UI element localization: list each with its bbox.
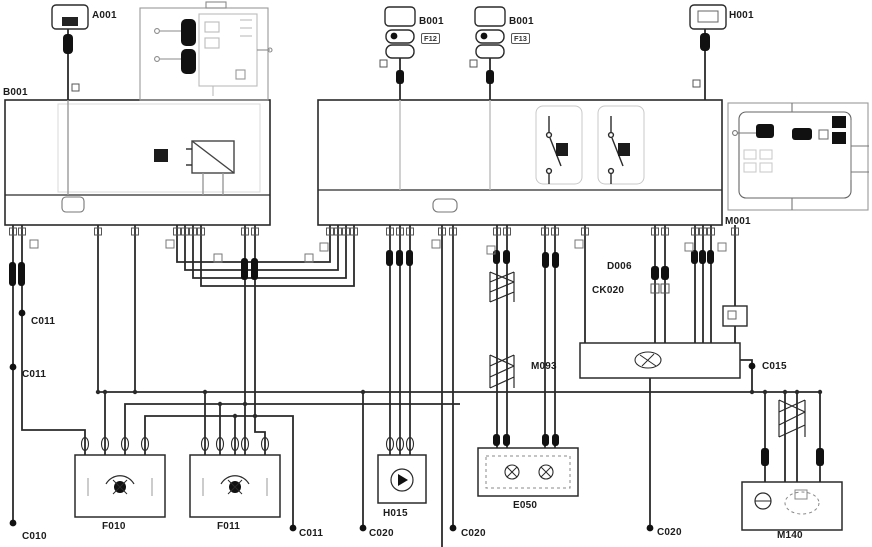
relay-detail-inset	[728, 103, 869, 210]
label-a001: A001	[92, 10, 117, 21]
wires	[13, 29, 820, 547]
label-fuse2-sub: F13	[511, 33, 530, 44]
pin-square	[10, 60, 739, 293]
bulb-detail-inset	[140, 2, 272, 100]
label-c011-lower: C011	[22, 369, 46, 380]
label-ck020: CK020	[592, 285, 624, 296]
r1-small-connector-box	[723, 306, 747, 326]
label-fuse1: B001	[419, 16, 444, 27]
label-h015: H015	[383, 508, 408, 519]
label-c015: C015	[762, 361, 787, 372]
label-c011-upper: C011	[31, 316, 55, 327]
label-m140: M140	[777, 530, 803, 541]
label-c020-mid: C020	[461, 528, 486, 539]
label-e050: E050	[513, 500, 537, 511]
m140-component-box	[742, 482, 842, 530]
h015-lamp-box	[378, 455, 426, 503]
fuse1-symbol	[385, 7, 415, 58]
label-f010: F010	[102, 521, 126, 532]
m093-component-box	[580, 343, 740, 378]
wiring-diagram-canvas: A001 B001 B001 F12 B001 F13 H001 M001 D0…	[0, 0, 872, 547]
label-d006: D006	[607, 261, 632, 272]
label-c020-right: C020	[657, 527, 682, 538]
splice-icon	[9, 33, 824, 466]
label-m093: M093	[531, 361, 557, 372]
h001-component-symbol	[690, 5, 726, 29]
label-c020-left: C020	[369, 528, 394, 539]
label-b001-box: B001	[3, 87, 28, 98]
label-fuse2: B001	[509, 16, 534, 27]
f011-right-headlamp-box	[190, 455, 280, 517]
fuse2-symbol	[475, 7, 505, 58]
a001-component-symbol	[52, 5, 88, 29]
wiring-layer	[0, 0, 872, 547]
twisted-wire-icon	[490, 272, 805, 437]
f010-left-headlamp-box	[75, 455, 165, 517]
label-m001: M001	[725, 216, 751, 227]
b001-internal-relay-icon	[68, 100, 490, 195]
label-f011: F011	[217, 521, 240, 532]
label-c011-bottom: C011	[299, 528, 323, 539]
m001-internal-switch-icon	[547, 116, 630, 184]
label-h001: H001	[729, 10, 754, 21]
m001-body-computer-box	[318, 100, 722, 225]
label-fuse1-sub: F12	[421, 33, 440, 44]
label-c010: C010	[22, 531, 47, 542]
b001-junction-box	[5, 100, 270, 225]
e050-instrument-panel-box	[478, 448, 578, 496]
